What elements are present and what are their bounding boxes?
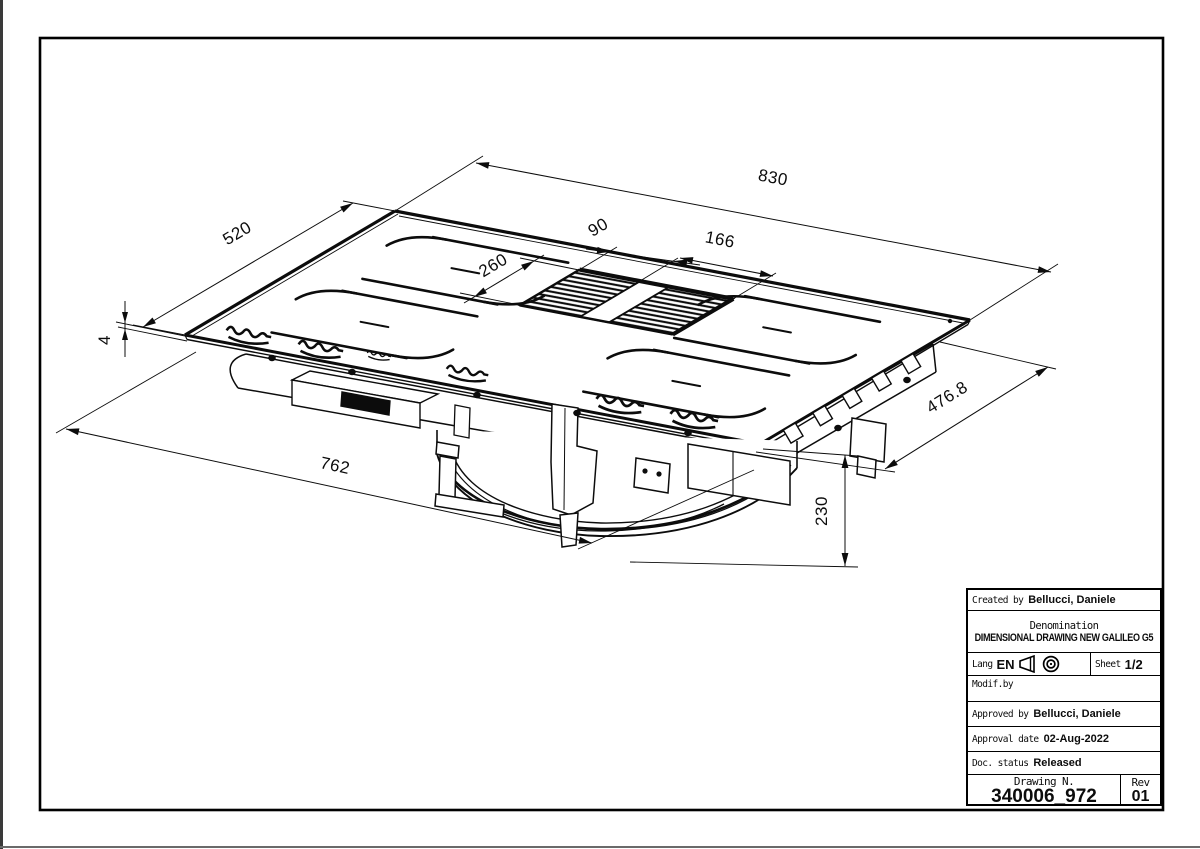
doc-status-value: Released [1033,757,1081,769]
created-by-value: Bellucci, Daniele [1028,594,1115,606]
dim-166: 166 [704,227,737,251]
sheet-value: 1/2 [1125,657,1143,672]
title-block-modif-row: Modif.by [968,676,1160,702]
lang-value: EN [996,657,1014,672]
dim-830: 830 [757,165,790,189]
rev-value: 01 [1132,789,1150,804]
title-block-lang-row: Lang EN Sheet 1/2 [968,653,1160,676]
modif-by-label: Modif.by [972,679,1013,690]
title-block-created-row: Created by Bellucci, Daniele [968,590,1160,611]
dim-520: 520 [220,217,255,249]
title-block-approved-row: Approved by Bellucci, Daniele [968,702,1160,727]
title-block-denomination-row: Denomination DIMENSIONAL DRAWING NEW GAL… [968,611,1160,653]
drawing-number-cell: Drawing N. 340006_972 [968,775,1120,804]
lang-label: Lang [972,659,992,670]
denomination-label: Denomination [1030,620,1099,632]
sheet-label: Sheet [1095,659,1121,670]
created-by-label: Created by [972,595,1023,606]
title-block-approval-date-row: Approval date 02-Aug-2022 [968,727,1160,752]
lang-cell: Lang EN [968,653,1090,675]
strap-buckle [634,458,670,493]
approved-by-label: Approved by [972,709,1028,720]
dim-4: 4 [95,335,114,345]
drawing-n-value: 340006_972 [991,788,1097,805]
drawing-page: 830 520 260 90 166 4 762 476.8 230 Creat… [0,0,1200,849]
rev-label: Rev [1131,776,1149,789]
first-angle-projection-icon [1018,655,1064,673]
page-edge-line [0,0,3,849]
rev-cell: Rev 01 [1120,775,1160,804]
page-edge-line-bottom [0,846,1200,848]
dim-230: 230 [812,496,831,526]
dim-762: 762 [319,453,352,478]
doc-status-label: Doc. status [972,758,1028,769]
dim-476.8: 476.8 [923,377,971,417]
title-block: Created by Bellucci, Daniele Denominatio… [966,588,1162,806]
title-block-number-row: Drawing N. 340006_972 Rev 01 [968,775,1160,804]
approved-by-value: Bellucci, Daniele [1033,708,1120,720]
approval-date-label: Approval date [972,734,1039,745]
title-block-status-row: Doc. status Released [968,752,1160,775]
dim-90: 90 [585,214,612,240]
sheet-cell: Sheet 1/2 [1090,653,1160,675]
approval-date-value: 02-Aug-2022 [1044,733,1109,745]
denomination-value: DIMENSIONAL DRAWING NEW GALILEO G5 [975,632,1154,644]
